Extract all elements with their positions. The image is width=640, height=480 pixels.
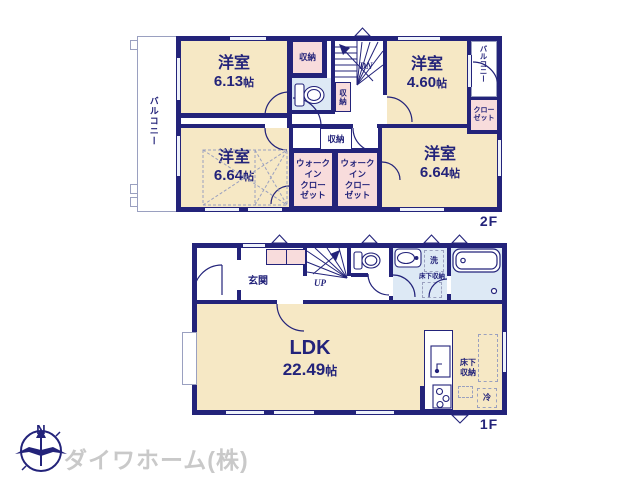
room-size: 22.49 <box>283 360 326 379</box>
bay-window <box>182 332 197 385</box>
shoe-cabinet-divider <box>286 249 287 265</box>
wall <box>471 130 497 134</box>
wall <box>323 41 327 78</box>
window <box>205 207 239 212</box>
room-size: 6.64 <box>214 167 243 184</box>
toilet-room-2f <box>292 78 331 110</box>
underfloor-hatch <box>458 386 473 398</box>
room-name: LDK <box>260 336 360 360</box>
room-unit: 帖 <box>243 77 254 89</box>
wall <box>181 113 291 118</box>
window <box>497 140 502 176</box>
storage-top: 収納 <box>292 41 323 74</box>
room-a-label: 洋室 6.13帖 <box>184 54 284 91</box>
laundry-label: 洗 <box>424 256 444 266</box>
balcony-left-label: バルコニー <box>148 96 159 146</box>
balcony-notch <box>130 40 138 50</box>
closet: クロー ゼット <box>471 100 497 130</box>
storage-mid: 収納 <box>320 128 352 150</box>
compass-icon: N <box>12 420 70 478</box>
stairs-down-label: DN <box>352 61 380 72</box>
triangle-marker <box>362 235 377 243</box>
underfloor-storage-washroom-label: 床下収納 <box>411 273 453 281</box>
walkin-closet-left: ウォーク イン クロー ゼット <box>293 152 333 207</box>
triangle-marker <box>355 28 370 36</box>
underfloor-hatch <box>422 282 442 298</box>
window <box>356 410 394 415</box>
window <box>243 243 265 248</box>
window <box>248 207 282 212</box>
wall <box>237 248 241 260</box>
balcony-right-label: バルコニー <box>479 45 488 83</box>
room-unit: 帖 <box>436 78 447 90</box>
company-name: ダイワホーム(株) <box>64 441 249 475</box>
window <box>467 55 472 87</box>
wall <box>181 124 265 128</box>
room-name: 洋室 <box>188 148 280 167</box>
room-b-label: 洋室 4.60帖 <box>391 55 463 92</box>
room-unit: 帖 <box>243 171 254 183</box>
wall <box>292 110 331 114</box>
floor2-label: 2F <box>474 213 504 230</box>
ldk-label: LDK 22.49帖 <box>260 336 360 380</box>
room-name: 洋室 <box>391 55 463 74</box>
window <box>502 332 507 372</box>
wall <box>351 273 368 277</box>
wall <box>303 300 502 304</box>
window <box>176 58 181 100</box>
wall <box>378 128 382 207</box>
storage-side: 収納 <box>335 82 351 112</box>
kitchen-counter <box>424 330 453 410</box>
room-size: 6.13 <box>214 73 243 90</box>
wall <box>192 300 277 304</box>
balcony-notch <box>130 197 138 207</box>
floor1-label: 1F <box>474 416 504 433</box>
triangle-marker <box>452 235 467 243</box>
room-name: 洋室 <box>388 145 492 164</box>
window <box>274 410 314 415</box>
wall <box>347 248 351 276</box>
wall <box>447 248 451 276</box>
room-size: 6.64 <box>420 164 449 181</box>
entrance-label: 玄関 <box>242 276 274 288</box>
window <box>398 36 440 41</box>
triangle-marker <box>424 235 439 243</box>
room-name: 洋室 <box>184 54 284 73</box>
wall <box>331 41 335 78</box>
wall <box>389 248 393 277</box>
room-unit: 帖 <box>449 168 460 180</box>
stairs-up-label: UP <box>306 278 334 289</box>
compass: N <box>12 420 70 478</box>
triangle-marker <box>452 415 468 423</box>
underfloor-storage-kitchen-label: 床下 収納 <box>452 358 484 377</box>
window <box>230 36 266 41</box>
triangle-marker <box>272 235 287 243</box>
room-unit: 帖 <box>325 364 337 378</box>
walkin-closet-right: ウォーク イン クロー ゼット <box>337 152 378 207</box>
room-d-label: 洋室 6.64帖 <box>388 145 492 182</box>
window <box>176 136 181 176</box>
room-size: 4.60 <box>407 74 436 91</box>
window <box>226 410 264 415</box>
window <box>400 207 444 212</box>
wall <box>383 41 387 95</box>
balcony-notch <box>130 184 138 194</box>
fridge-label: 冷 <box>477 393 497 403</box>
room-c-label: 洋室 6.64帖 <box>188 148 280 185</box>
floorplan-canvas: バルコニー 収納 収納 収納 ウォーク イン クロー ゼット ウォーク イン ク… <box>0 0 640 480</box>
bathroom <box>451 248 502 300</box>
